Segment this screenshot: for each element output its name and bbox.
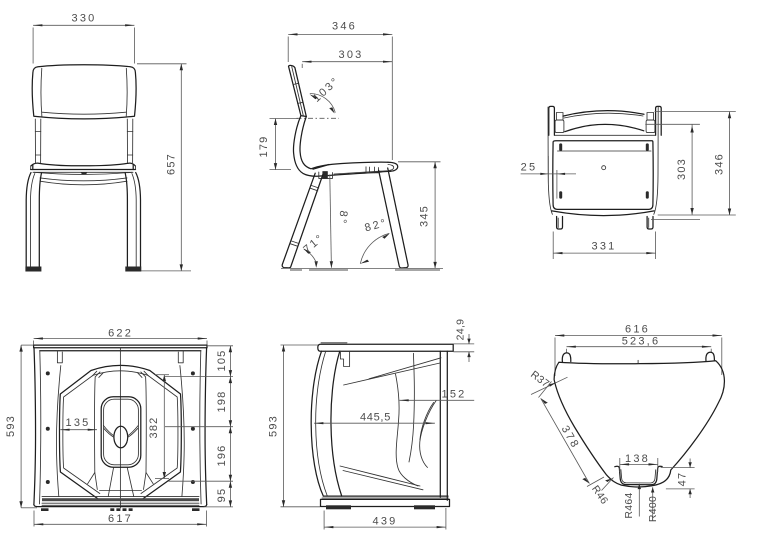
svg-text:616: 616 xyxy=(625,323,650,335)
svg-text:179: 179 xyxy=(258,136,270,158)
svg-text:47: 47 xyxy=(676,472,688,487)
svg-text:152: 152 xyxy=(442,388,467,400)
svg-text:439: 439 xyxy=(373,516,398,528)
svg-text:346: 346 xyxy=(714,153,726,175)
svg-text:330: 330 xyxy=(72,13,97,25)
svg-text:25: 25 xyxy=(521,161,538,173)
svg-text:24,9: 24,9 xyxy=(455,319,467,341)
svg-text:593: 593 xyxy=(267,415,279,437)
svg-text:523,6: 523,6 xyxy=(622,336,661,348)
svg-text:346: 346 xyxy=(332,20,357,32)
svg-text:95: 95 xyxy=(216,488,228,503)
svg-text:593: 593 xyxy=(5,415,17,437)
svg-text:345: 345 xyxy=(419,205,431,227)
svg-text:303: 303 xyxy=(676,158,688,180)
svg-text:303: 303 xyxy=(339,49,364,61)
svg-text:8°: 8° xyxy=(336,210,350,226)
svg-text:R400: R400 xyxy=(647,496,659,522)
svg-text:196: 196 xyxy=(216,445,228,467)
svg-text:331: 331 xyxy=(592,240,617,252)
svg-text:198: 198 xyxy=(216,391,228,413)
svg-text:445,5: 445,5 xyxy=(360,412,391,424)
svg-text:R464: R464 xyxy=(623,492,635,518)
svg-text:135: 135 xyxy=(66,417,91,429)
svg-text:657: 657 xyxy=(166,153,178,175)
svg-text:382: 382 xyxy=(148,417,160,439)
svg-text:138: 138 xyxy=(625,453,650,465)
svg-text:617: 617 xyxy=(108,513,133,525)
svg-text:622: 622 xyxy=(108,327,133,339)
svg-text:105: 105 xyxy=(216,350,228,372)
